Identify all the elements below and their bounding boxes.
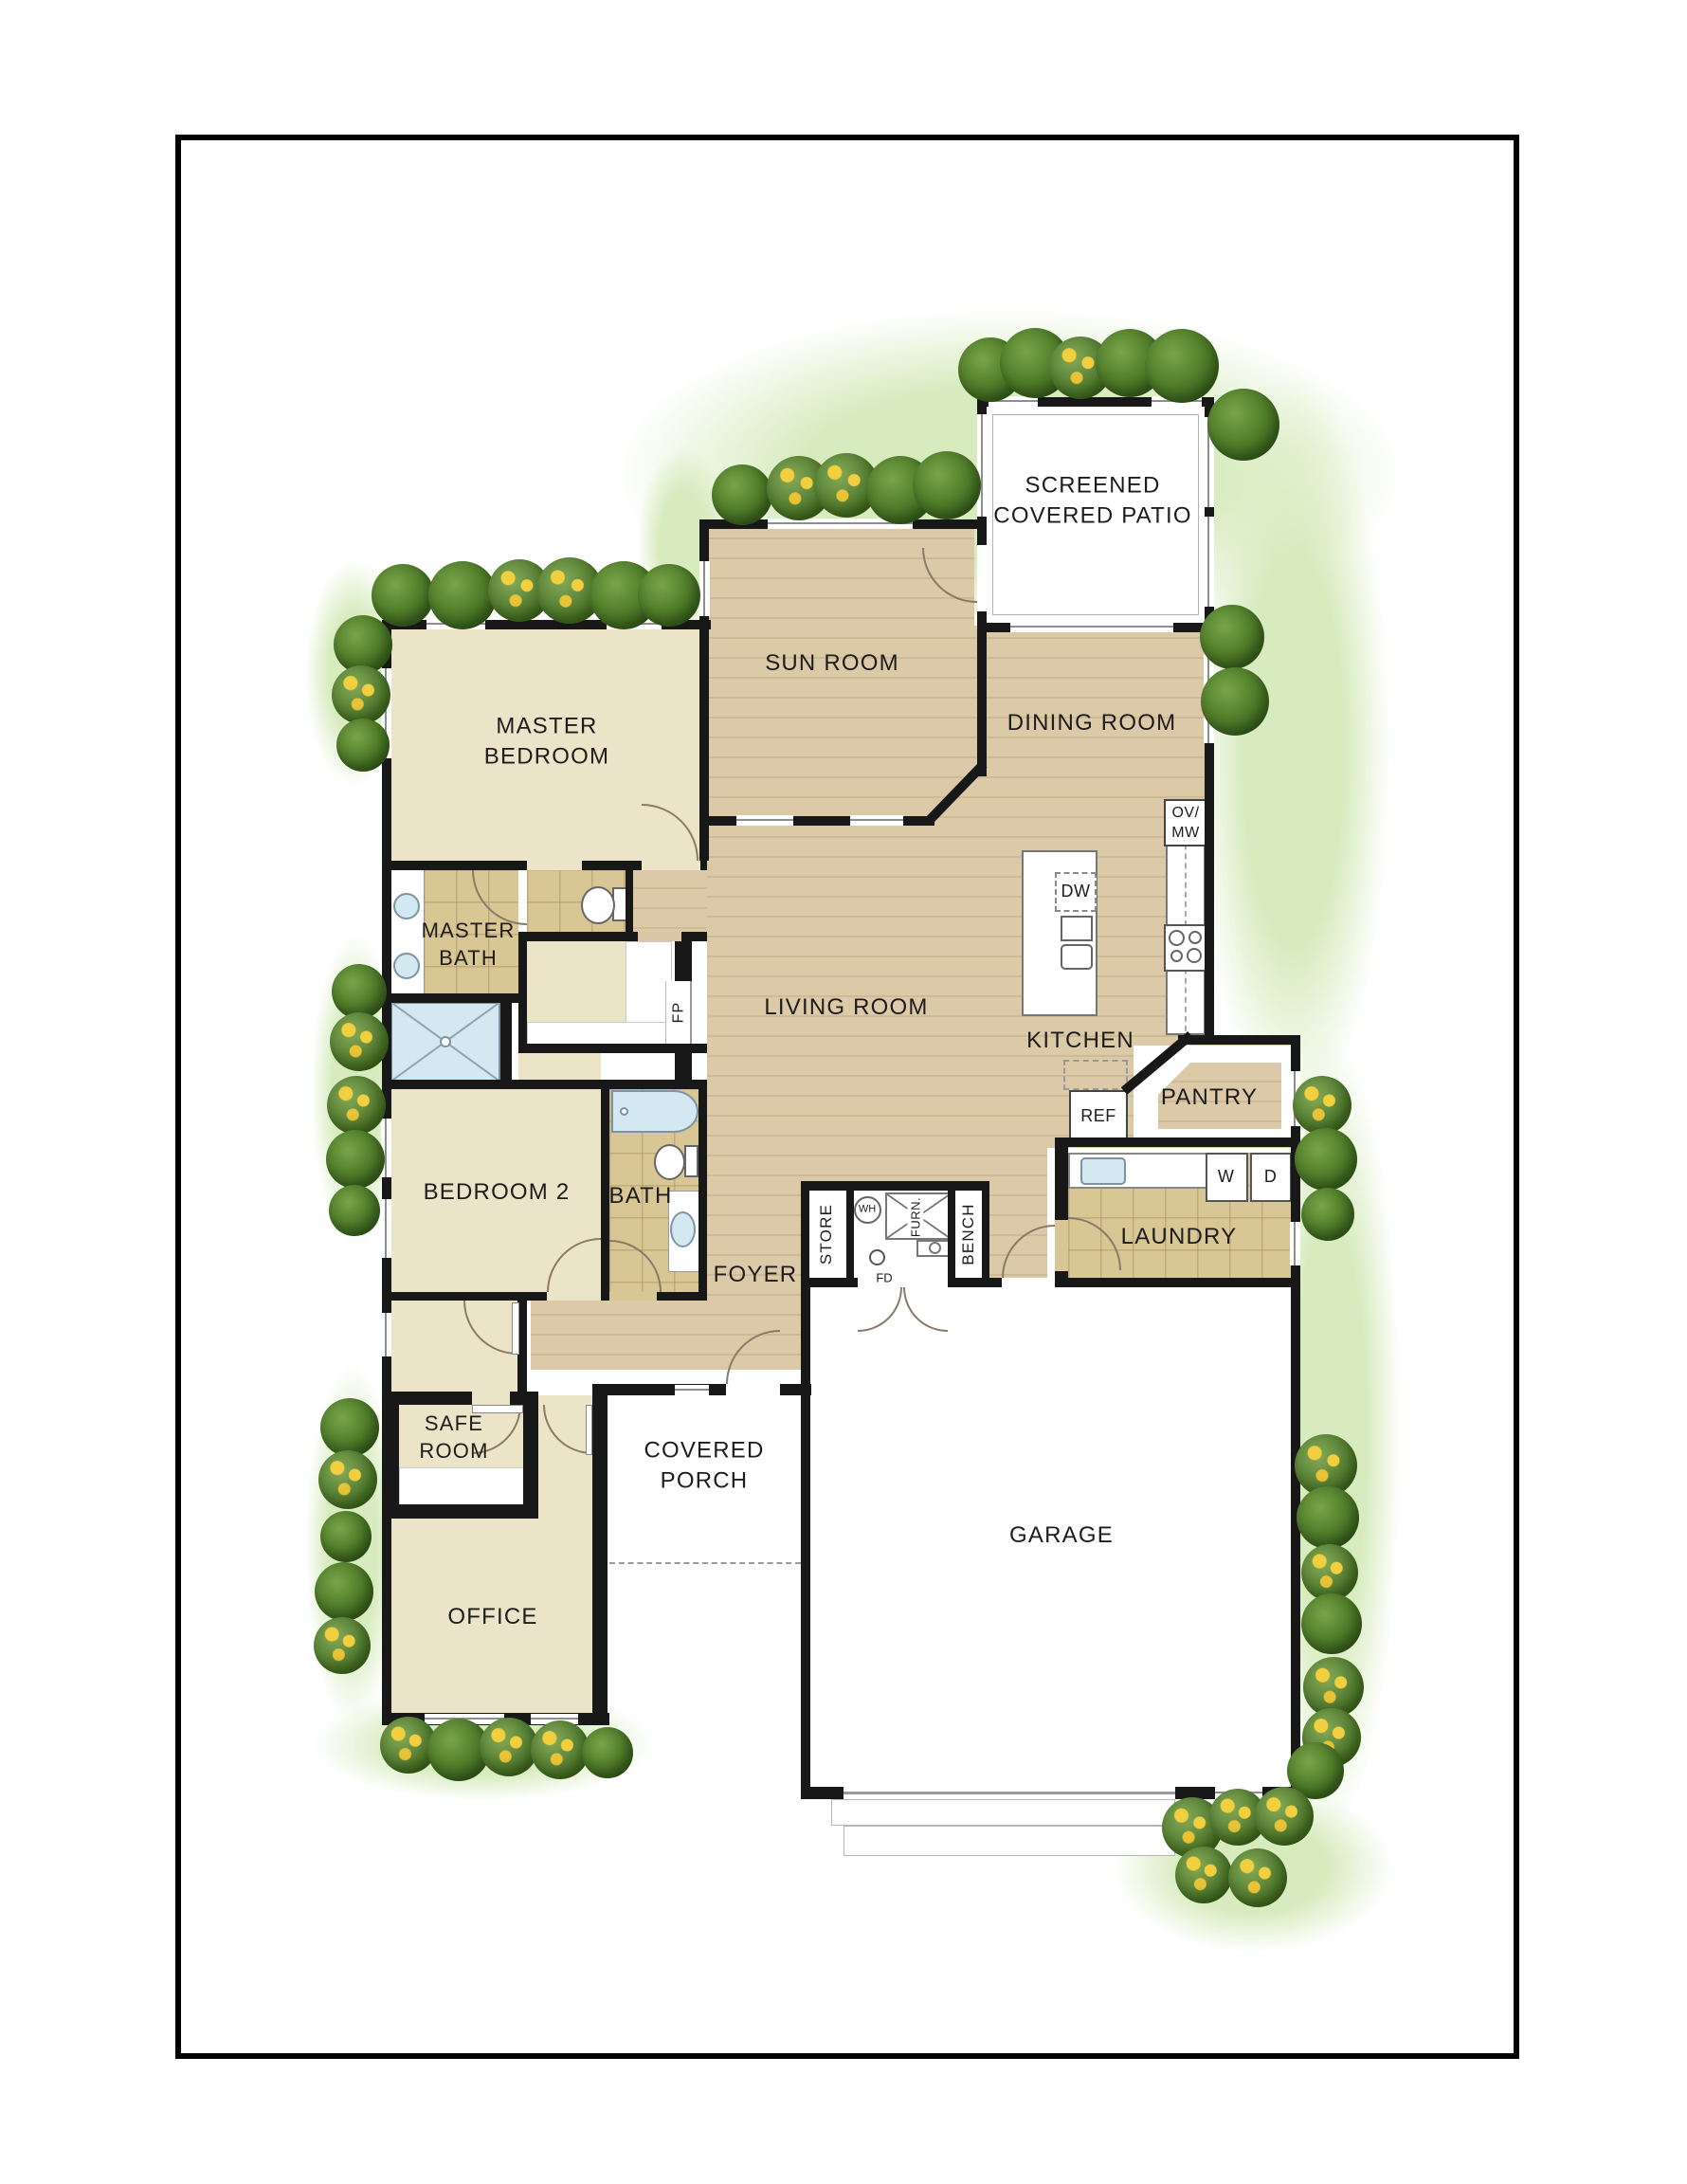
wall (675, 941, 692, 981)
wall (500, 1002, 512, 1080)
bush (582, 1727, 633, 1778)
door-opening (547, 1292, 601, 1301)
appliance-label-furnace: FURN. (907, 1197, 923, 1237)
bush (428, 561, 497, 629)
laundry-sink (1080, 1157, 1126, 1185)
wall (1291, 1286, 1300, 1799)
bush (329, 1185, 380, 1236)
bush (712, 464, 772, 525)
burner (1169, 930, 1185, 946)
wall (982, 1181, 989, 1287)
window (1290, 1222, 1300, 1265)
master-closet-floor (527, 941, 626, 1022)
bush (372, 564, 434, 627)
room-label-bedroom-2: BEDROOM 2 (424, 1177, 571, 1208)
bush (1201, 667, 1269, 736)
flower-bush (1255, 1787, 1314, 1846)
wall (801, 1787, 843, 1799)
door-opening (726, 1384, 780, 1395)
room-label-foyer: FOYER (714, 1260, 798, 1290)
flower-bush (327, 1076, 386, 1135)
porch-dashed-edge (609, 1562, 801, 1564)
bush (1145, 329, 1219, 403)
flower-bush (531, 1720, 590, 1779)
flower-bush (1228, 1848, 1287, 1907)
bush (1207, 389, 1279, 461)
sink-basin (393, 953, 420, 979)
room-label-master-bath: MASTER BATH (422, 917, 516, 972)
window (381, 1199, 391, 1258)
room-label-laundry: LAUNDRY (1121, 1222, 1238, 1252)
wall (698, 1080, 707, 1301)
door-opening (858, 1278, 948, 1287)
screen-panel (1204, 517, 1214, 607)
filler (518, 1053, 601, 1080)
room-label-garage: GARAGE (1009, 1520, 1114, 1551)
wall (592, 1395, 608, 1725)
bush (913, 451, 981, 519)
wall (523, 1405, 538, 1519)
mech-pan-drain (929, 1242, 941, 1254)
flower-bush (480, 1718, 538, 1776)
wall (948, 1181, 955, 1287)
appliance-label-dryer: D (1264, 1166, 1278, 1189)
room-label-kitchen: KITCHEN (1026, 1026, 1134, 1056)
burner (1187, 948, 1202, 963)
door-opening (609, 1292, 657, 1301)
bush (1301, 1188, 1354, 1241)
flower-bush (330, 1012, 389, 1071)
wall (382, 993, 518, 1003)
screen-panel (977, 414, 988, 517)
grass-patch (1196, 374, 1390, 1123)
wall (801, 1181, 989, 1191)
bush (638, 564, 700, 627)
kitchen-sink (1061, 916, 1093, 941)
room-label-safe-room: SAFE ROOM (419, 1410, 488, 1465)
window (381, 1313, 391, 1356)
appliance-label-refrigerator: REF (1080, 1105, 1116, 1128)
door-opening (642, 861, 700, 870)
wood-floor-master-hall (632, 869, 707, 941)
wall (1178, 1035, 1300, 1045)
flower-bush (314, 1617, 371, 1674)
room-label-screened-covered-patio: SCREENED COVERED PATIO (993, 470, 1191, 530)
burner (1188, 931, 1202, 944)
burner (1170, 950, 1183, 962)
floor-drain (869, 1249, 885, 1265)
door-opening (977, 545, 987, 611)
flower-bush (318, 1450, 377, 1509)
flower-bush (1301, 1544, 1358, 1601)
door-opening (472, 1392, 510, 1405)
bush (332, 964, 387, 1019)
room-label-office: OFFICE (447, 1602, 537, 1632)
closet-label-bench: BENCH (958, 1203, 979, 1265)
wall (801, 1181, 809, 1287)
kitchen-sink (1061, 944, 1093, 970)
room-label-sun-room: SUN ROOM (765, 648, 899, 679)
sink-basin (670, 1211, 696, 1247)
door-leaf (512, 1302, 519, 1355)
wall (382, 1080, 707, 1089)
wall (382, 1392, 538, 1405)
bush (320, 1511, 372, 1562)
toilet-bowl (581, 886, 615, 924)
toilet-bowl (654, 1144, 685, 1180)
room-label-living-room: LIVING ROOM (764, 992, 928, 1023)
flower-bush (332, 665, 390, 724)
wall (1055, 1137, 1300, 1147)
room-label-covered-porch: COVERED PORCH (644, 1435, 764, 1495)
bush (1297, 1486, 1359, 1549)
toilet-tank (684, 1145, 698, 1177)
bush (326, 1130, 385, 1189)
cased-opening (736, 815, 793, 826)
sink-basin (393, 893, 420, 919)
wall (518, 932, 527, 1053)
cased-opening (850, 815, 903, 826)
wall (626, 869, 633, 936)
bush (315, 1562, 373, 1621)
door-opening (1055, 1220, 1068, 1271)
appliance-label-oven-microwave: OV/ MW (1171, 803, 1199, 843)
door-opening (527, 861, 582, 870)
appliance-label-dishwasher: DW (1061, 881, 1091, 903)
door-leaf (586, 1405, 592, 1455)
appliance-label-washer: W (1218, 1166, 1235, 1189)
bush (320, 1398, 379, 1457)
room-label-bath: BATH (608, 1181, 672, 1211)
bush (1301, 1593, 1362, 1654)
window (675, 1385, 709, 1395)
bush (1295, 1128, 1357, 1191)
safe-room-shelf (399, 1467, 525, 1506)
garage-door-line (843, 1792, 1175, 1794)
wall (801, 1278, 810, 1799)
room-label-dining-room: DINING ROOM (1007, 708, 1177, 738)
door-opening (638, 932, 681, 941)
door-opening (1002, 1278, 1055, 1287)
tub-drain (620, 1107, 628, 1116)
appliance-label-floor-drain: FD (876, 1269, 892, 1285)
bush (336, 719, 390, 772)
fixture-label-fireplace: FP (668, 1002, 688, 1024)
room-label-master-bedroom: MASTER BEDROOM (484, 711, 609, 771)
driveway-apron (843, 1826, 1175, 1856)
sliding-door (1010, 622, 1173, 632)
wall (389, 1504, 523, 1519)
shower-drain (440, 1036, 451, 1047)
bush (1200, 605, 1264, 669)
upper-cabinet-dashed (1063, 1060, 1128, 1090)
wall (389, 1405, 399, 1507)
wall (518, 1044, 707, 1053)
driveway-apron (831, 1799, 1175, 1826)
closet-label-store: STORE (816, 1204, 837, 1265)
wall (846, 1181, 854, 1287)
flower-bush (1293, 1076, 1351, 1135)
floor-plan-page: SCREENED COVERED PATIO SUN ROOM DINING R… (0, 0, 1687, 2184)
flower-bush (1175, 1847, 1232, 1903)
appliance-label-water-heater: WH (859, 1203, 876, 1217)
room-label-pantry: PANTRY (1161, 1083, 1258, 1113)
window (699, 561, 710, 616)
